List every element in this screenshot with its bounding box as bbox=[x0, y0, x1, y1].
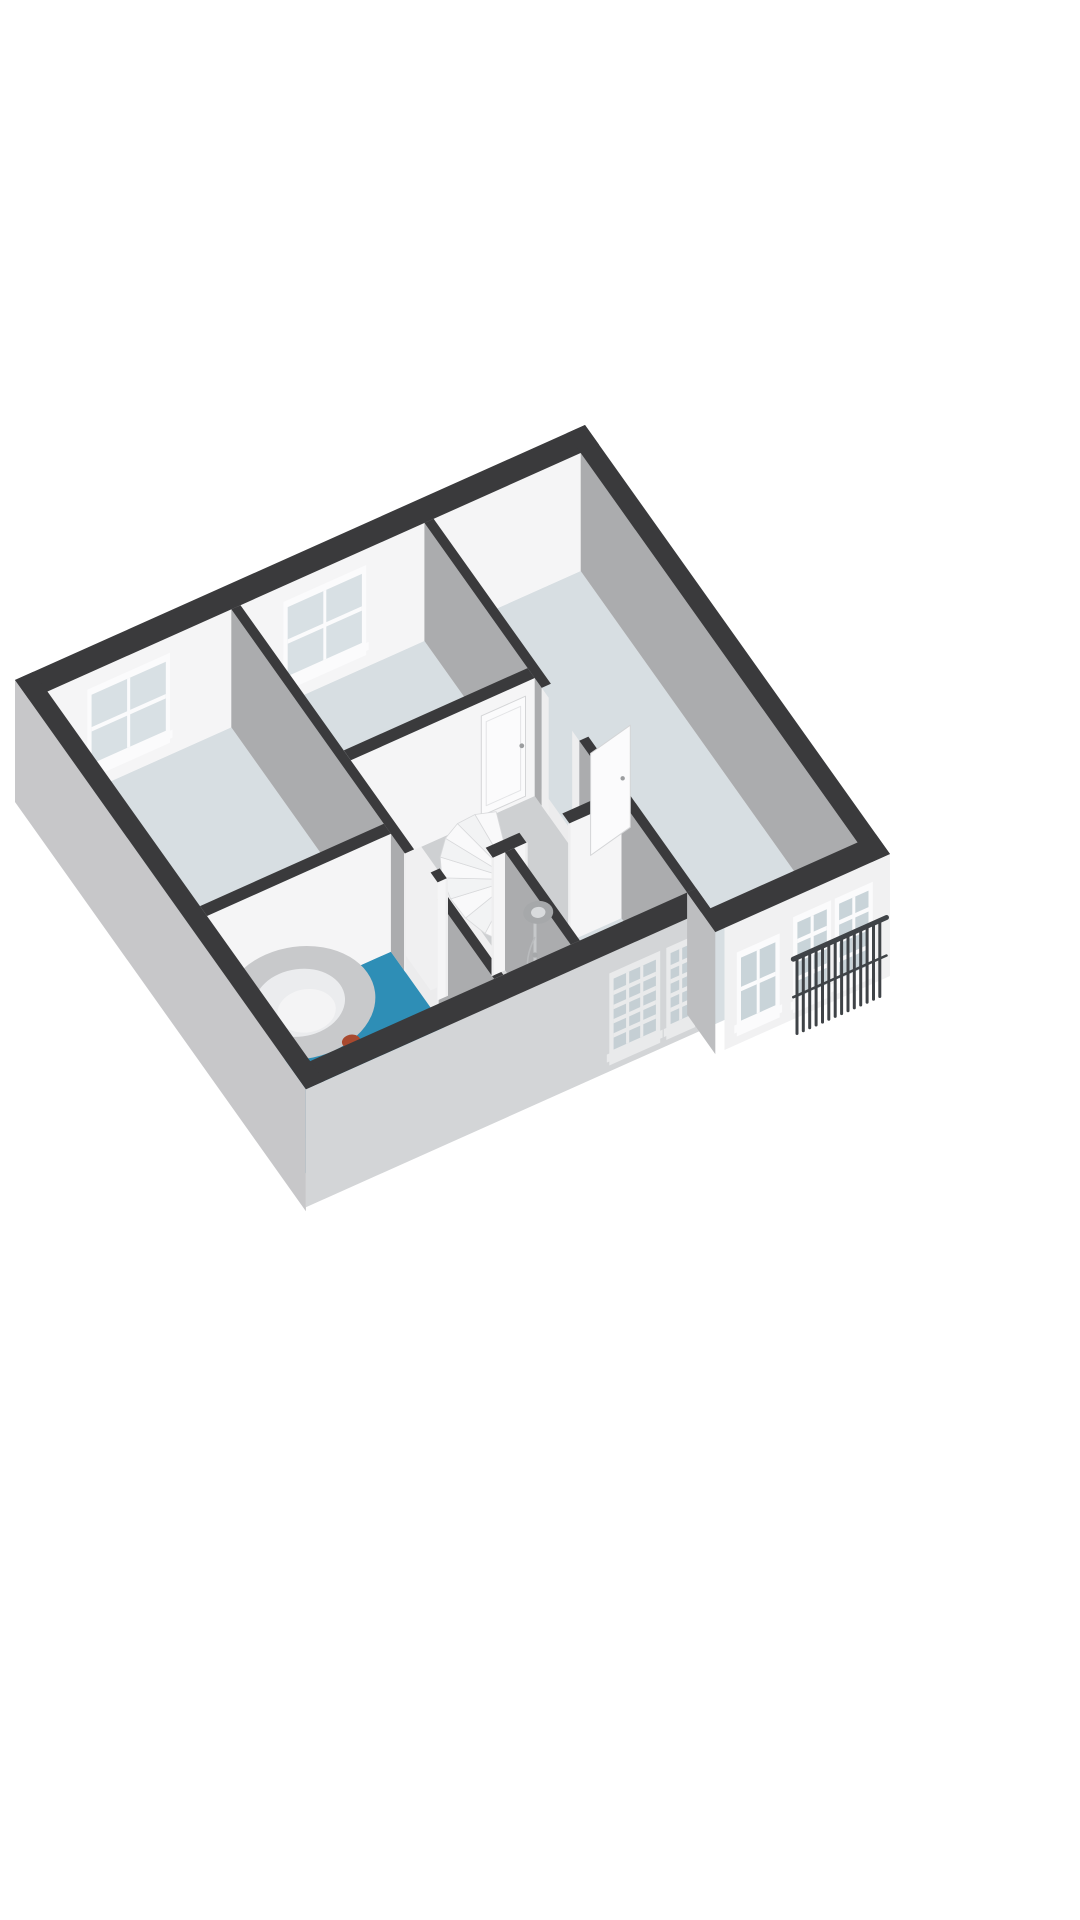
door-jamb bbox=[404, 852, 406, 973]
door-handle-icon bbox=[620, 776, 624, 780]
floorplan-3d-render bbox=[0, 0, 1080, 1920]
door-handle-icon bbox=[519, 743, 524, 748]
door-jamb bbox=[492, 857, 495, 976]
window-muntin bbox=[679, 948, 682, 1020]
shower-knob bbox=[532, 952, 537, 957]
floorplan-canvas: 3D floor plan - upper floor cutaway bbox=[0, 0, 1080, 1920]
door-jamb bbox=[568, 823, 571, 942]
door-jamb bbox=[446, 878, 448, 997]
window-muntin bbox=[640, 965, 643, 1037]
door-jamb bbox=[542, 688, 549, 816]
wall-face bbox=[438, 878, 447, 1000]
window-muntin bbox=[626, 972, 629, 1044]
